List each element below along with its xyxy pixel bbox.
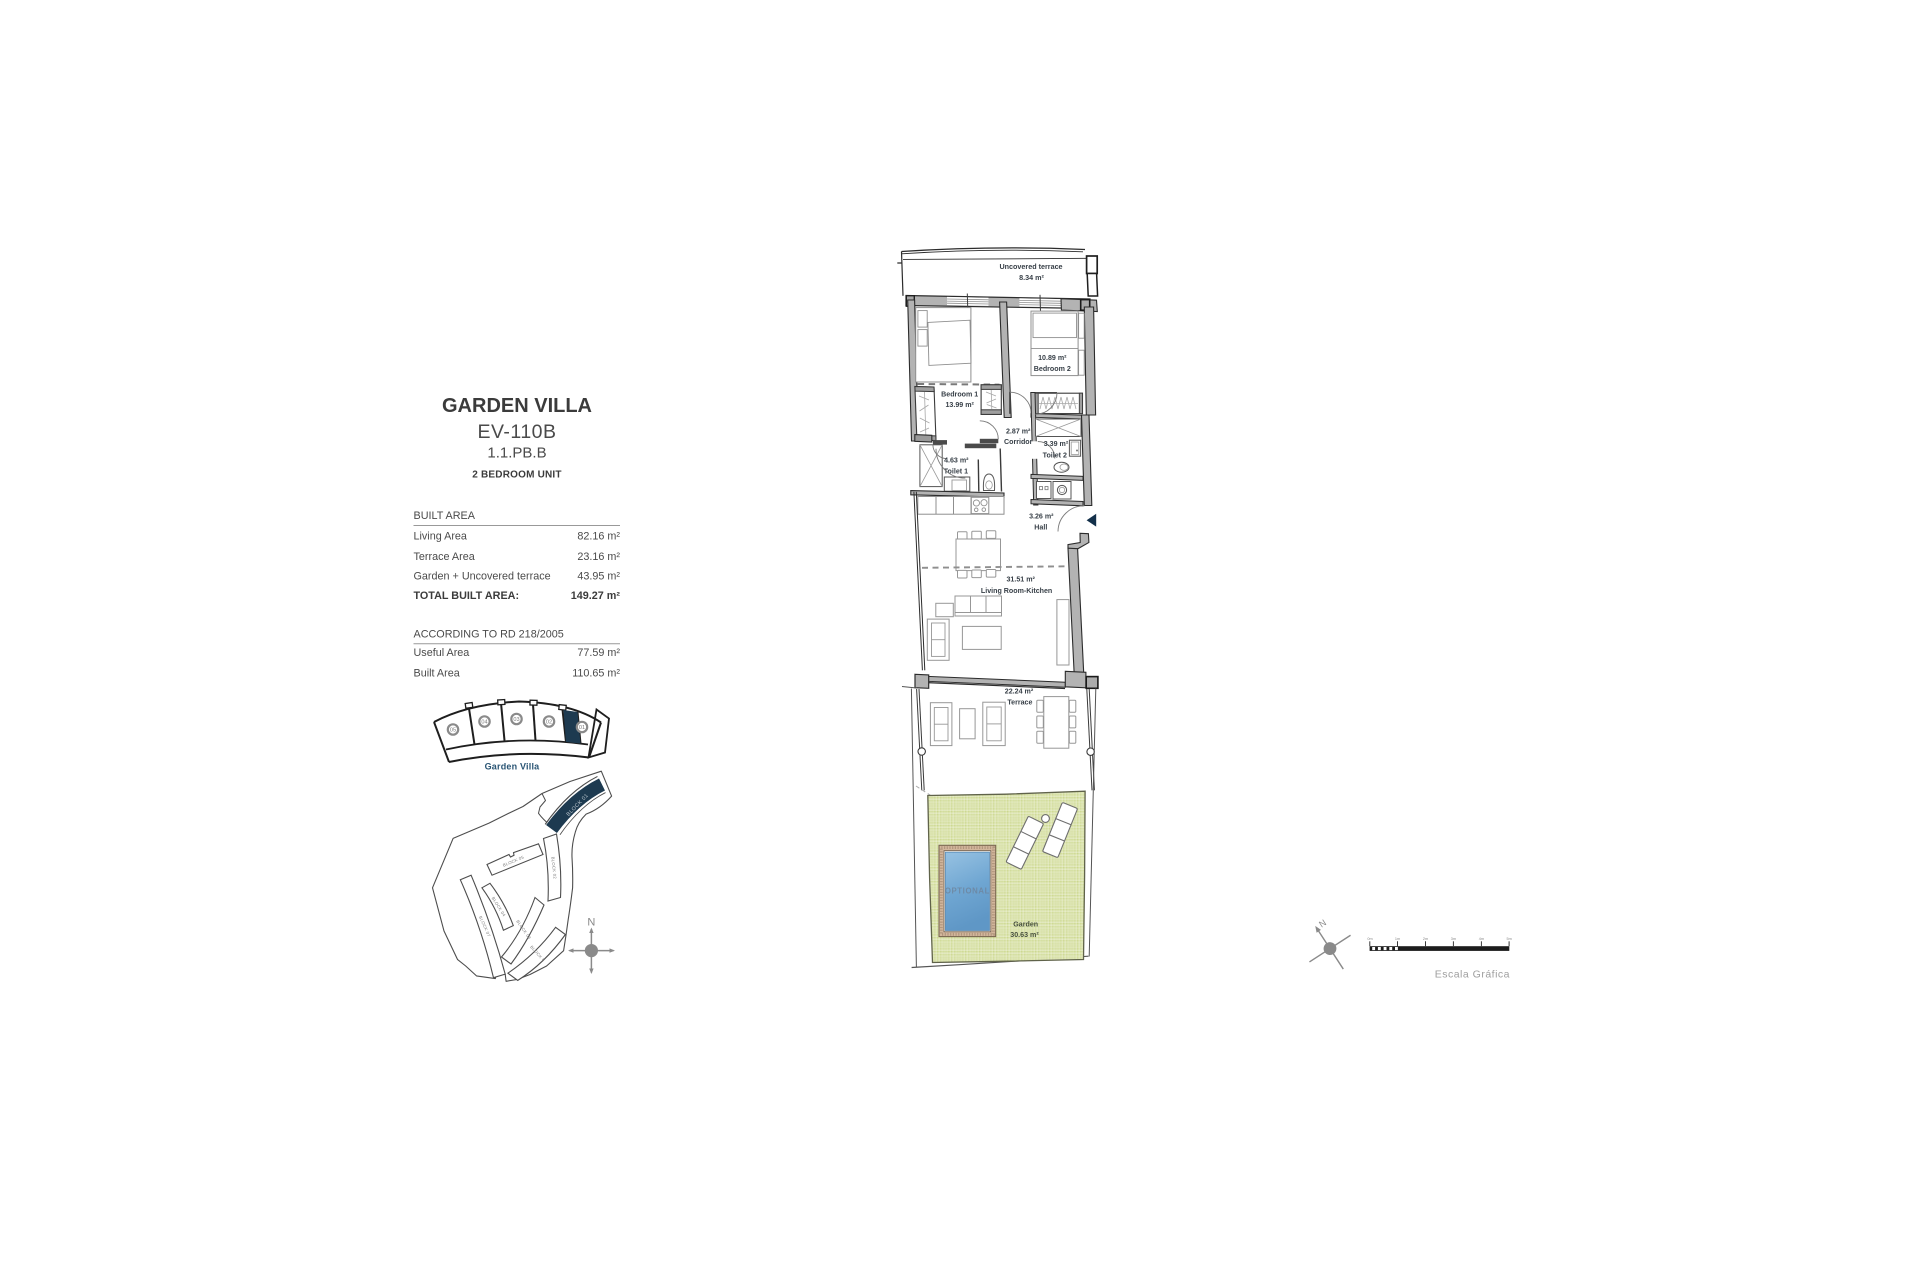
svg-text:2 BEDROOM UNIT: 2 BEDROOM UNIT (472, 470, 561, 481)
svg-text:05: 05 (450, 728, 456, 734)
svg-text:Uncovered terrace: Uncovered terrace (999, 262, 1062, 271)
svg-text:0m: 0m (1367, 937, 1372, 941)
svg-text:1m: 1m (1395, 937, 1400, 941)
svg-text:Corridor: Corridor (1004, 438, 1033, 446)
svg-text:77.59 m²: 77.59 m² (577, 647, 620, 659)
svg-text:5m: 5m (1506, 937, 1511, 941)
svg-text:Bedroom 2: Bedroom 2 (1034, 365, 1071, 373)
svg-text:OPTIONAL: OPTIONAL (945, 887, 990, 896)
svg-text:8.34 m²: 8.34 m² (1019, 273, 1044, 282)
svg-text:3.26 m²: 3.26 m² (1029, 513, 1054, 521)
svg-text:3m: 3m (1451, 937, 1456, 941)
svg-text:110.65 m²: 110.65 m² (572, 668, 620, 680)
svg-text:GARDEN VILLA: GARDEN VILLA (442, 395, 592, 417)
svg-text:Garden Villa: Garden Villa (485, 762, 541, 772)
svg-text:3.39 m²: 3.39 m² (1044, 440, 1069, 448)
svg-text:Bedroom 1: Bedroom 1 (941, 390, 978, 398)
svg-text:04: 04 (481, 720, 487, 726)
svg-text:Hall: Hall (1034, 524, 1047, 532)
svg-text:10.89 m²: 10.89 m² (1038, 354, 1067, 362)
svg-text:Living Area: Living Area (414, 531, 467, 543)
svg-text:N: N (1317, 918, 1328, 930)
svg-text:4m: 4m (1479, 937, 1484, 941)
svg-text:Garden: Garden (1013, 920, 1038, 928)
svg-text:13.99 m²: 13.99 m² (945, 401, 974, 409)
svg-text:01: 01 (579, 725, 585, 731)
svg-text:2m: 2m (1423, 937, 1428, 941)
svg-text:Escala Gráfica: Escala Gráfica (1435, 969, 1510, 981)
svg-text:Terrace: Terrace (1007, 699, 1032, 707)
svg-text:1.1.PB.B: 1.1.PB.B (487, 445, 546, 462)
svg-text:N: N (587, 917, 595, 929)
svg-text:2.87 m²: 2.87 m² (1006, 427, 1031, 435)
svg-text:23.16 m²: 23.16 m² (577, 551, 620, 563)
svg-text:149.27 m²: 149.27 m² (571, 590, 621, 602)
svg-text:Useful Area: Useful Area (414, 647, 470, 659)
svg-text:Garden + Uncovered terrace: Garden + Uncovered terrace (414, 571, 551, 583)
svg-text:Built Area: Built Area (414, 668, 460, 680)
svg-text:ACCORDING TO RD 218/2005: ACCORDING TO RD 218/2005 (414, 629, 564, 641)
svg-text:03: 03 (513, 717, 519, 723)
svg-text:Toilet 1: Toilet 1 (944, 467, 968, 475)
svg-text:30.63 m²: 30.63 m² (1010, 931, 1039, 939)
svg-text:02: 02 (546, 720, 552, 726)
svg-text:31.51 m²: 31.51 m² (1006, 576, 1035, 584)
svg-text:43.95 m²: 43.95 m² (577, 571, 620, 583)
svg-text:TOTAL BUILT AREA:: TOTAL BUILT AREA: (414, 590, 520, 602)
svg-text:BUILT AREA: BUILT AREA (414, 510, 476, 522)
svg-text:Toilet 2: Toilet 2 (1043, 451, 1067, 459)
svg-text:4.63 m²: 4.63 m² (944, 457, 969, 465)
svg-text:Living Room-Kitchen: Living Room-Kitchen (981, 587, 1052, 595)
svg-text:82.16 m²: 82.16 m² (577, 531, 620, 543)
svg-text:Terrace Area: Terrace Area (414, 551, 475, 563)
svg-text:22.24 m²: 22.24 m² (1005, 688, 1034, 696)
svg-text:EV-110B: EV-110B (477, 421, 556, 443)
